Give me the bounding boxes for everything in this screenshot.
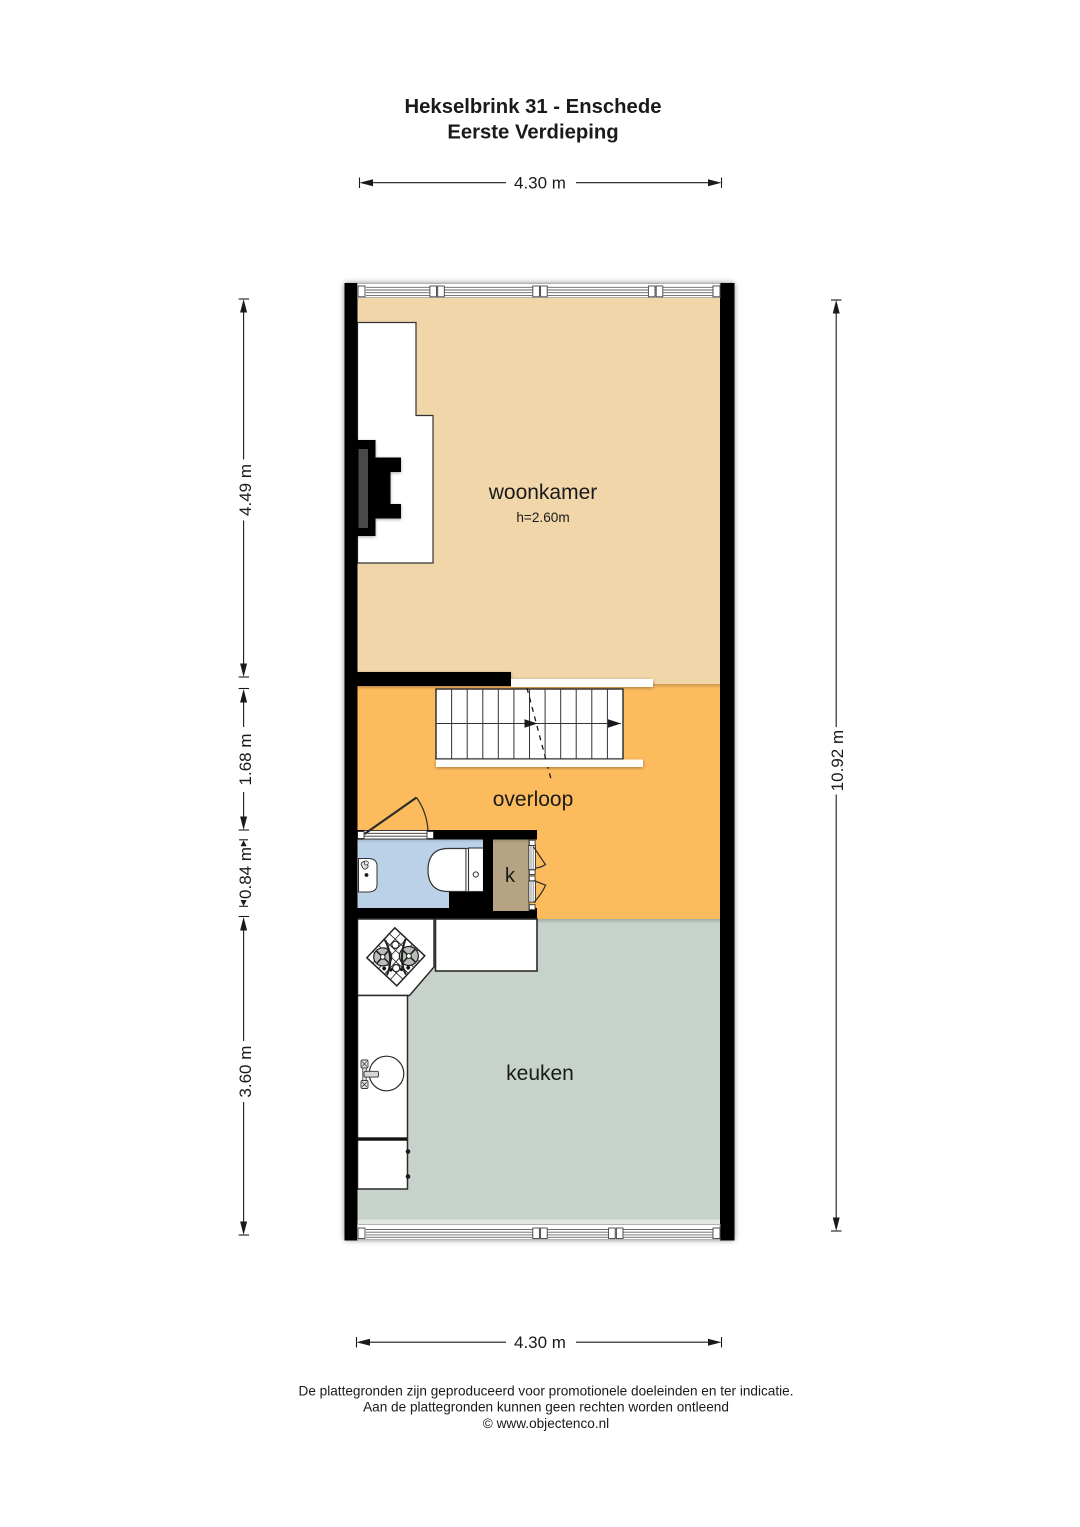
svg-text:4.30 m: 4.30 m (514, 173, 566, 192)
svg-text:Hekselbrink 31 - Enschede: Hekselbrink 31 - Enschede (404, 96, 661, 118)
svg-text:h=2.60m: h=2.60m (516, 510, 569, 525)
svg-text:woonkamer: woonkamer (488, 481, 598, 504)
svg-text:De plattegronden zijn geproduc: De plattegronden zijn geproduceerd voor … (299, 1384, 794, 1399)
svg-text:10.92 m: 10.92 m (828, 730, 847, 791)
svg-text:keuken: keuken (506, 1062, 574, 1085)
svg-text:4.49 m: 4.49 m (236, 464, 255, 516)
svg-text:© www.objectenco.nl: © www.objectenco.nl (483, 1416, 609, 1431)
svg-text:0.84 m: 0.84 m (236, 847, 255, 899)
svg-text:4.30 m: 4.30 m (514, 1333, 566, 1352)
svg-text:1.68 m: 1.68 m (236, 734, 255, 786)
svg-text:3.60 m: 3.60 m (236, 1046, 255, 1098)
svg-text:Aan de plattegronden kunnen ge: Aan de plattegronden kunnen geen rechten… (363, 1400, 729, 1415)
svg-text:overloop: overloop (493, 788, 574, 811)
svg-text:Eerste Verdieping: Eerste Verdieping (447, 122, 618, 144)
svg-text:k: k (505, 864, 516, 887)
